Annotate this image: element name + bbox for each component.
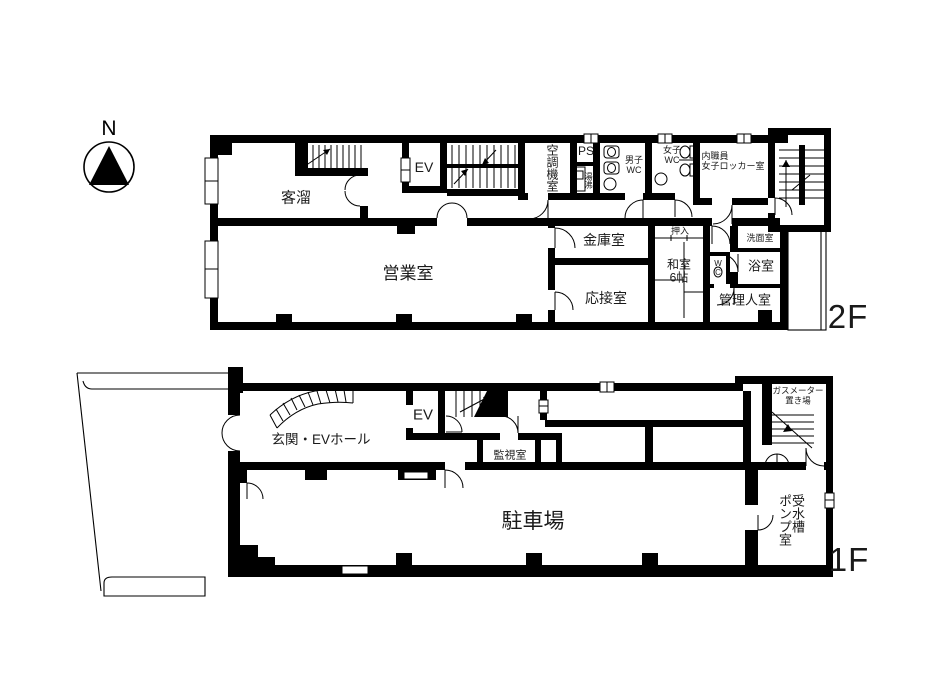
room-label-ev-2f: EV [415,159,434,175]
room-label-gas-meter: ガスメーター 置き場 [772,386,823,405]
room-label-yuwakashi: 湯沸 [584,172,593,189]
room-label-ev-1f: EV [413,406,433,423]
room-label-kyakudamari: 客溜 [281,189,311,206]
north-arrow-icon [84,142,134,192]
room-label-chushajo: 駐車場 [502,510,565,534]
room-label-oshiire: 押入 [671,226,689,236]
room-label-senmen-shitsu: 洗面室 [746,233,773,243]
floor2-balcony [788,228,826,330]
floor1-stairs-right [772,412,814,448]
floor1-stairs-center [456,389,508,417]
floorplan-canvas: N 客溜 EV 空調機室 PS 湯沸 男子 WC 女子 WC 内職員 女子ロッカ… [0,0,947,681]
room-label-locker-room: 内職員 女子ロッカー室 [701,151,764,171]
room-label-osetsu-shitsu: 応接室 [585,290,627,306]
room-label-wc-small: W C [714,260,722,278]
room-label-genkan-ev-hall: 玄関・EVホール [271,432,370,448]
floor2-label: 2F [828,298,869,336]
room-label-kanshi-shitsu: 監視室 [494,450,527,463]
floorplan-drawing [0,0,947,681]
room-label-jusuiso: 受水槽 ポンプ室 [778,494,804,546]
floor2-stairs-center [447,145,518,188]
room-label-kinko-shitsu: 金庫室 [583,232,625,248]
room-label-ps: PS [578,145,594,159]
room-label-joshi-wc: 女子 WC [663,145,681,165]
room-label-kucho-kishitsu: 空調機室 [546,144,558,192]
room-label-washitsu: 和室 6帖 [667,259,691,286]
room-label-yokushitsu: 浴室 [748,260,774,275]
room-label-danshi-wc: 男子 WC [625,155,643,175]
floor1-label: 1F [829,541,870,579]
floor2-stairs-annex [779,145,824,207]
floor1-open-area-outline [77,373,230,596]
compass-north-label: N [101,117,116,141]
room-label-kanrinin-shitsu: 管理人室 [719,294,771,309]
floor1-entrance-steps [270,389,353,428]
floor2-stairs-top [305,145,361,168]
floor1-walls [228,367,833,577]
room-label-eigyo-shitsu: 営業室 [383,264,434,284]
